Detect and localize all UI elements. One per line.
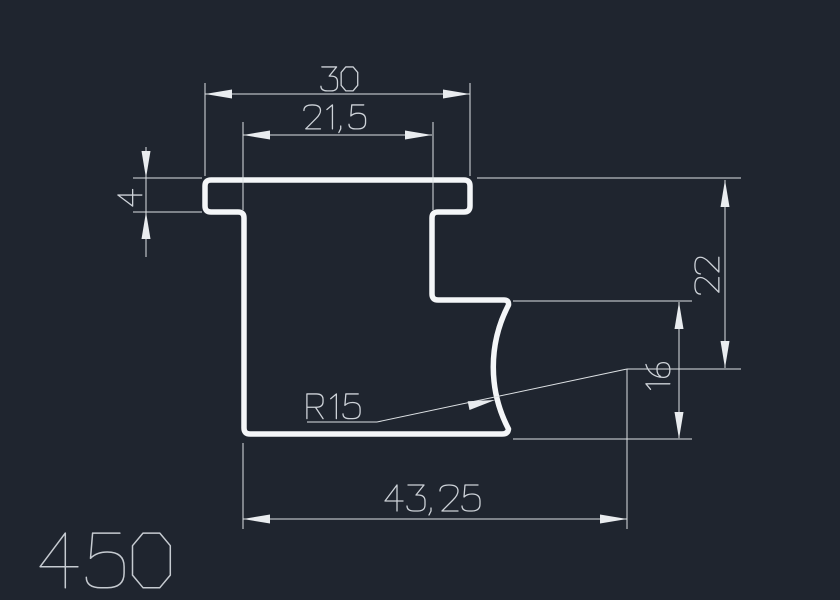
canvas-background — [0, 0, 840, 600]
drawing-canvas — [0, 0, 840, 600]
